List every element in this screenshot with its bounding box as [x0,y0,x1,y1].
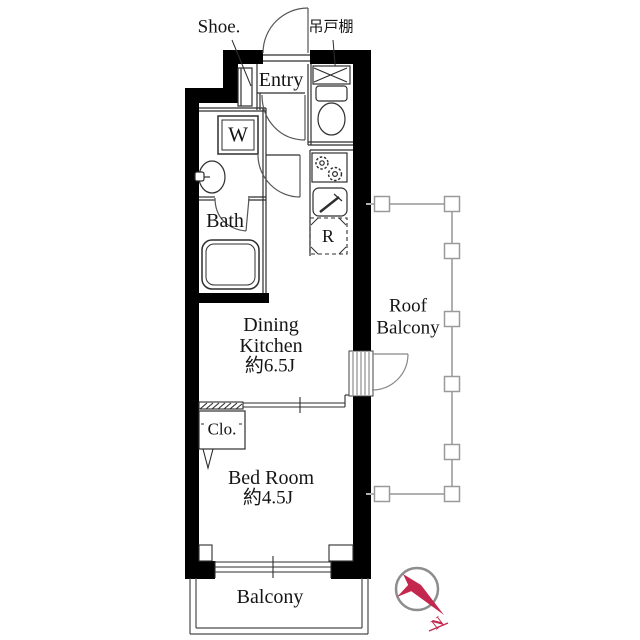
hanging-cupboard-label: 吊戸棚 [308,21,353,36]
entry-label: Entry [259,70,303,90]
sliding-door-partition [199,395,353,413]
roof-balcony-railing [366,197,460,502]
toilet-icon [313,66,350,135]
dining-kitchen-label-line1: Dining [243,315,299,335]
shoe-cabinet-icon [238,68,252,106]
closet-label: Clo. [206,421,239,438]
dining-kitchen-label-line2: Kitchen [239,336,302,356]
compass-icon: N [396,568,448,633]
folding-door-icon [203,449,213,468]
bedroom-size-label: 約4.5J [243,489,293,508]
refrigerator-label: R [322,227,334,245]
kitchen-sink-icon [313,188,347,216]
bedroom-window [215,556,331,578]
washer-label: W [228,125,248,146]
shoe-label: Shoe. [198,18,241,37]
roof-balcony-door-arc [349,351,408,396]
roof-balcony-label-line1: Roof [389,297,427,316]
stove-icon [312,153,347,182]
bathtub-icon [202,240,259,289]
entry-door-arc [263,8,308,53]
floorplan-canvas: N [0,0,640,640]
bedroom-label: Bed Room [228,468,314,488]
washbasin-icon [195,161,225,193]
bath-label: Bath [206,211,244,231]
dining-kitchen-size-label: 約6.5J [245,357,295,376]
toilet-door-arc [262,95,305,140]
washroom-door-arc [258,155,300,197]
pillar-notches [199,545,353,561]
floorplan-page: N Shoe. 吊戸棚 Entry W Bath R Dining Kitche… [0,0,640,640]
balcony-label: Balcony [237,587,304,607]
roof-balcony-label-line2: Balcony [376,319,439,338]
